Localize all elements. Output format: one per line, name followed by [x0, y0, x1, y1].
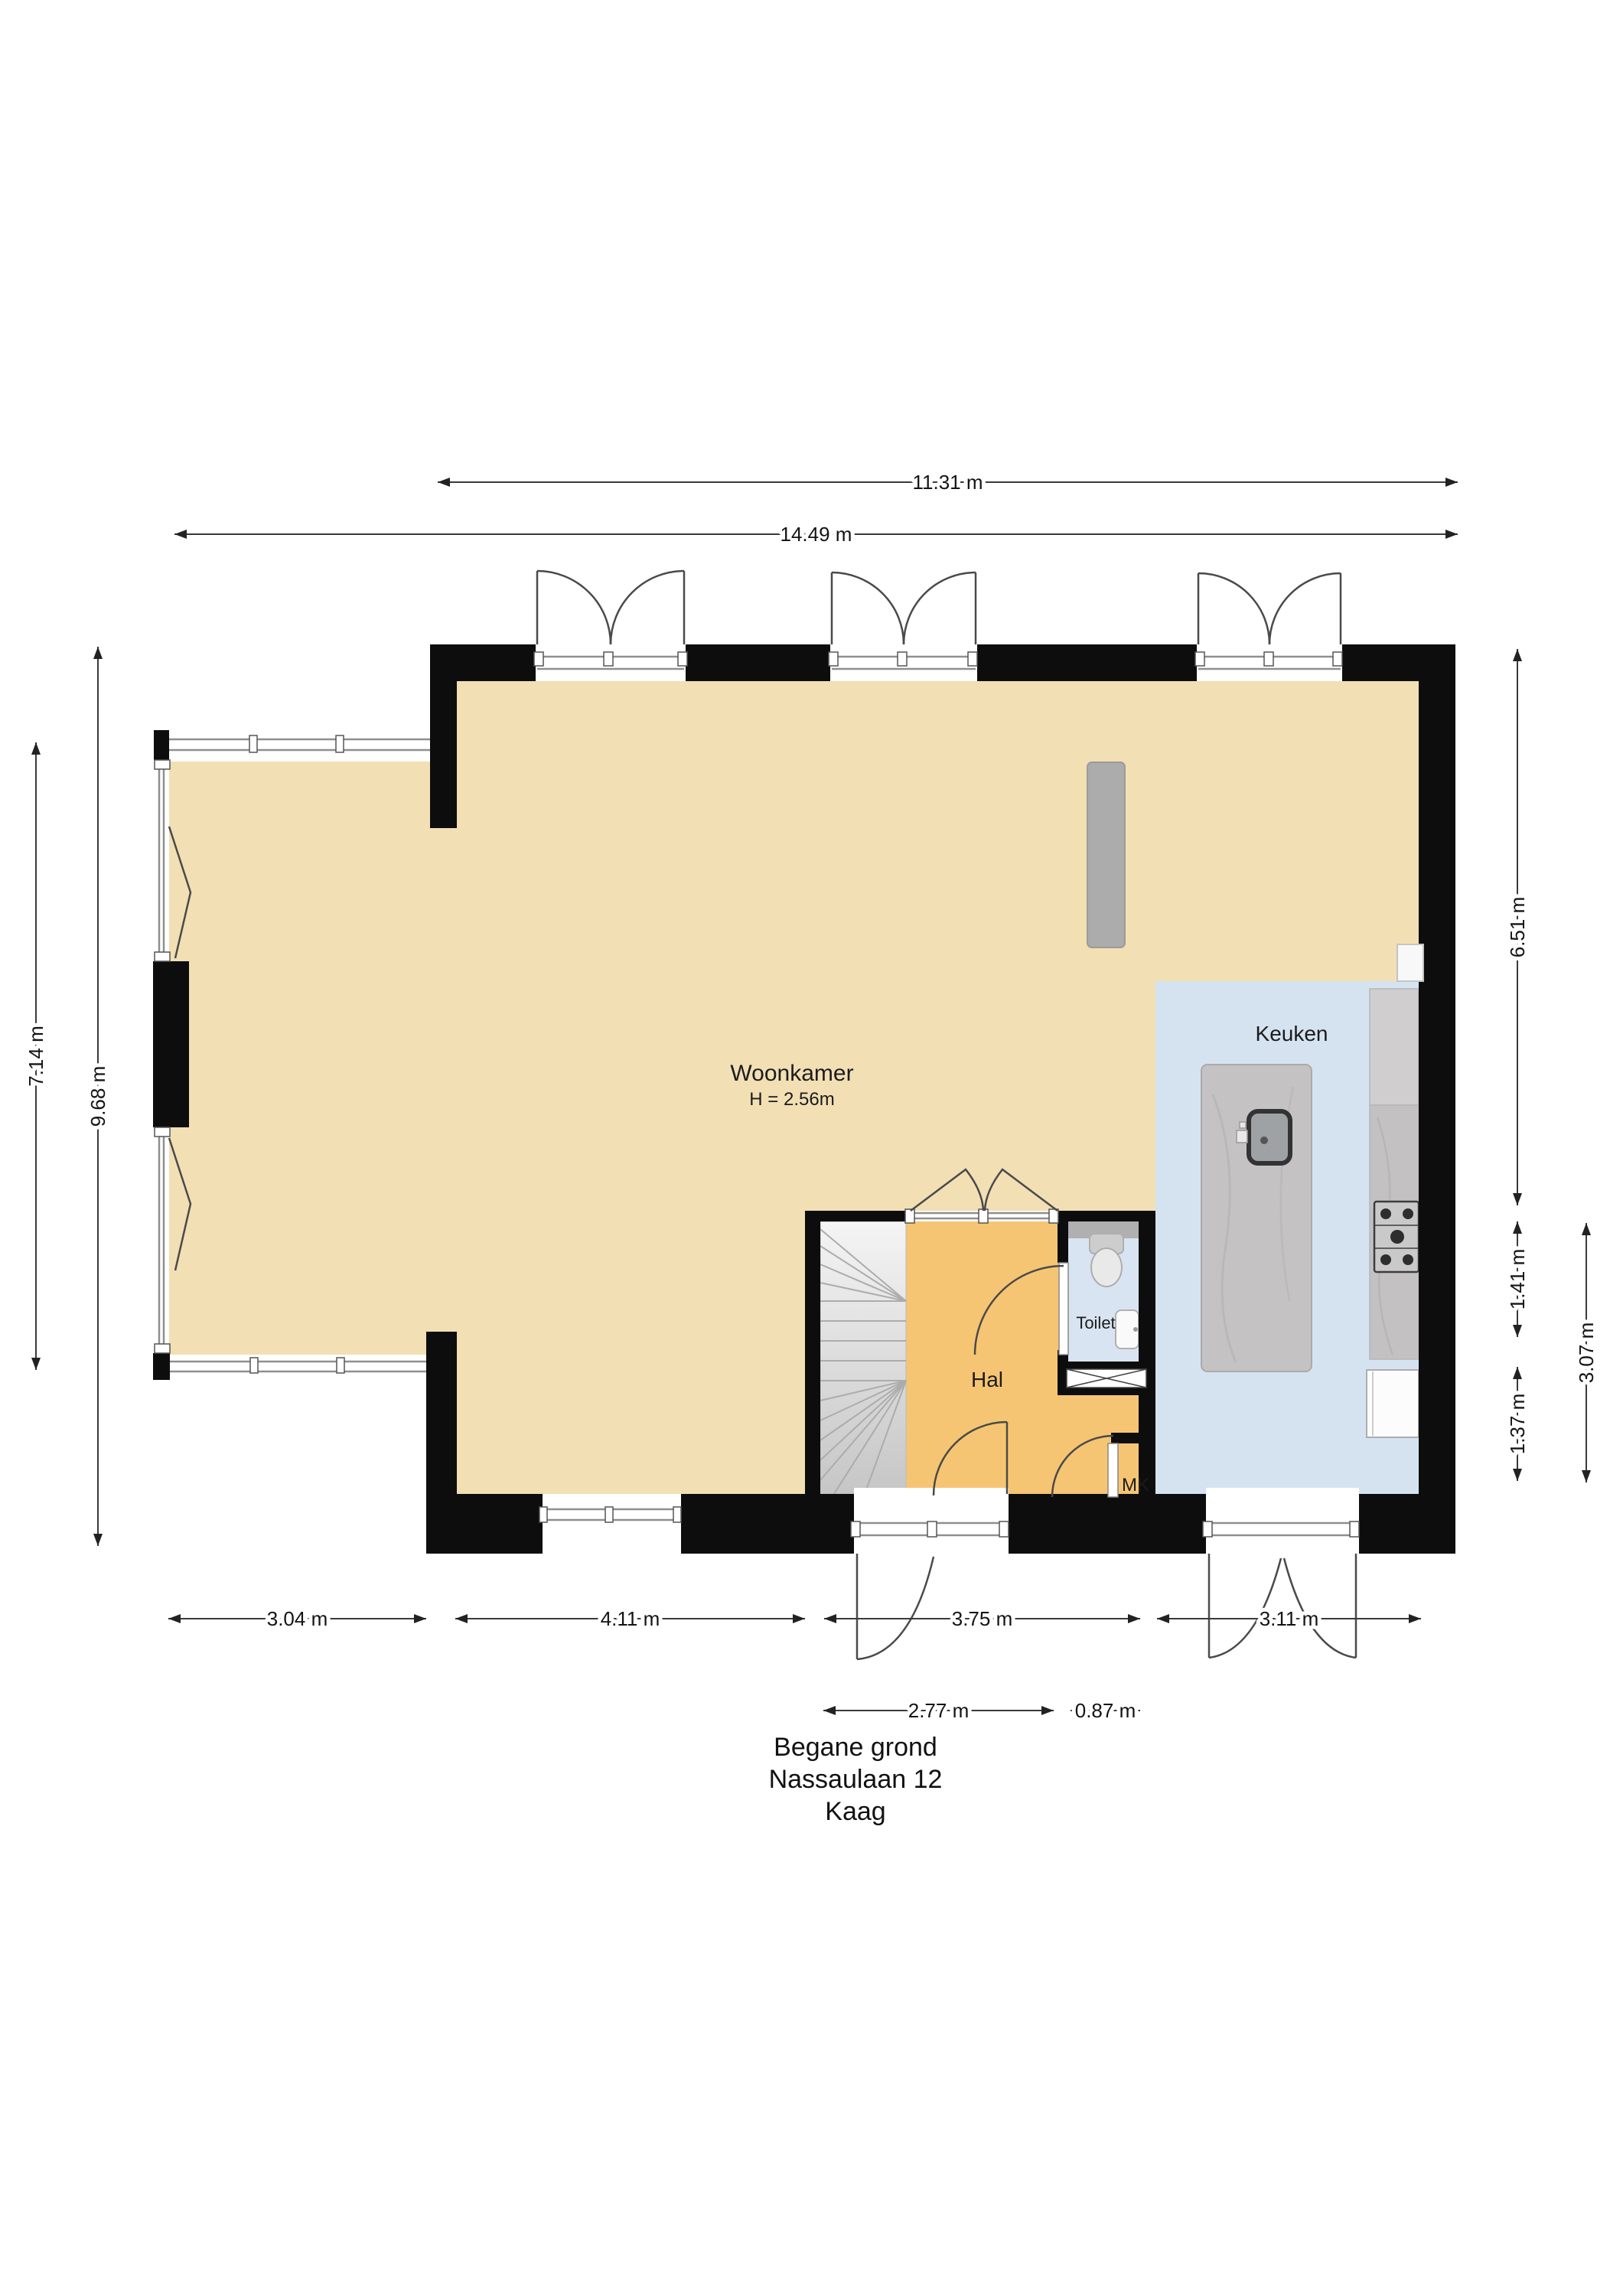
wall-segment — [1419, 644, 1455, 1554]
mk-label: MK — [1122, 1475, 1149, 1495]
sink-drain-icon — [1260, 1137, 1268, 1144]
title-street: Nassaulaan 12 — [769, 1763, 943, 1795]
wall-segment — [1009, 1494, 1206, 1554]
dimension-arrow-icon — [1041, 1706, 1054, 1715]
wall-segment — [977, 644, 1197, 681]
dimension-arrow-icon — [1513, 649, 1522, 661]
hall-top-wall — [805, 1211, 909, 1221]
dimension-label: 11.31 m — [912, 471, 983, 494]
dimension-bottom_4: 3.11 m — [1157, 1607, 1421, 1630]
dimension-label: 6.51 m — [1506, 897, 1529, 958]
woonkamer-label: Woonkamer — [730, 1061, 853, 1086]
bay-corner — [153, 1353, 170, 1380]
wall-segment — [686, 644, 830, 681]
dimension-arrow-icon — [1409, 1614, 1421, 1623]
dimension-arrow-icon — [1513, 1367, 1522, 1379]
bay-wall-block — [153, 961, 189, 1127]
dimension-left_inner: 7.14 m — [24, 742, 47, 1370]
dimension-arrow-icon — [93, 1534, 103, 1546]
dishwasher — [1367, 1370, 1419, 1437]
column — [1087, 762, 1125, 947]
title-city: Kaag — [769, 1795, 943, 1828]
dimension-label: 1.37 m — [1506, 1394, 1529, 1455]
dimension-label: 3.07 m — [1575, 1322, 1598, 1384]
dimension-bottom_1: 3.04 m — [168, 1607, 426, 1630]
french-door — [1195, 573, 1342, 681]
burner-icon — [1403, 1208, 1413, 1219]
wall-segment — [681, 1494, 854, 1554]
dimension-bottom_3: 3.75 m — [824, 1607, 1140, 1630]
dimension-arrow-icon — [414, 1614, 426, 1623]
kitchen-door — [1203, 1488, 1359, 1658]
dimension-arrow-icon — [1513, 1221, 1522, 1234]
sink-faucet-lever-icon — [1240, 1122, 1246, 1128]
dimension-sub_1: 2.77 m — [823, 1699, 1054, 1722]
dimension-arrow-icon — [1582, 1470, 1591, 1482]
washbasin-tap-icon — [1133, 1327, 1138, 1332]
burner-icon — [1403, 1254, 1413, 1265]
dimension-left_outer: 9.68 m — [86, 647, 109, 1546]
toilet-room — [1068, 1221, 1139, 1362]
dimension-label: 3.11 m — [1260, 1607, 1319, 1630]
title-block: Begane grond Nassaulaan 12 Kaag — [769, 1731, 943, 1828]
staircase-body — [820, 1221, 906, 1494]
wall-segment — [430, 644, 457, 828]
dimension-arrow-icon — [438, 478, 450, 487]
burner-icon — [1380, 1254, 1391, 1265]
dimension-arrow-icon — [1513, 1193, 1522, 1205]
toilet-bowl — [1091, 1248, 1122, 1287]
kitchen-wall — [1139, 1211, 1155, 1494]
dimension-label: 2.77 m — [908, 1699, 970, 1722]
dimension-right_upper: 6.51 m — [1506, 649, 1529, 1205]
dimension-arrow-icon — [1513, 1325, 1522, 1337]
hal-label: Hal — [971, 1368, 1003, 1391]
dimension-bottom_2: 4.11 m — [455, 1607, 805, 1630]
keuken-label: Keuken — [1256, 1022, 1328, 1045]
floorplan-page: Woonkamer H = 2.56m Keuken Hal Toilet MK… — [0, 0, 1623, 2296]
dimension-label: 9.68 m — [86, 1066, 109, 1127]
dimension-arrow-icon — [31, 742, 41, 755]
dimension-label: 14.49 m — [781, 523, 852, 546]
dimension-label: 1.41 m — [1506, 1249, 1529, 1310]
burner-icon — [1390, 1230, 1404, 1244]
dimension-label: 4.11 m — [601, 1607, 660, 1630]
burner-icon — [1380, 1208, 1391, 1219]
dimension-label: 3.04 m — [267, 1607, 328, 1630]
bay-floor — [168, 762, 457, 1358]
dimension-arrow-icon — [93, 647, 103, 659]
duct-shaft — [1067, 1369, 1146, 1388]
dimension-label: 7.14 m — [24, 1026, 47, 1087]
island-sink — [1249, 1111, 1290, 1163]
dimension-right_lower: 1.37 m — [1506, 1367, 1529, 1481]
dimension-arrow-icon — [1445, 478, 1458, 487]
hall-wall — [805, 1211, 820, 1494]
wall-segment — [1359, 1494, 1455, 1554]
dimension-arrow-icon — [174, 530, 187, 539]
sink-faucet-icon — [1237, 1130, 1247, 1143]
toilet-label: Toilet — [1076, 1313, 1115, 1332]
living-room-floor — [457, 681, 1419, 981]
bay-corner — [154, 730, 169, 760]
dimension-arrow-icon — [824, 1614, 836, 1623]
dimension-arrow-icon — [1513, 1469, 1522, 1481]
dimension-arrow-icon — [1128, 1614, 1140, 1623]
dimension-arrow-icon — [793, 1614, 805, 1623]
stove — [1374, 1202, 1419, 1272]
dimension-label: 3.75 m — [952, 1607, 1013, 1630]
dimension-sub_2: 0.87 m — [1071, 1699, 1140, 1722]
mk-wall — [1111, 1433, 1139, 1443]
dimension-arrow-icon — [168, 1614, 181, 1623]
wall-niche — [1397, 944, 1423, 981]
dimension-label: 0.87 m — [1075, 1699, 1136, 1722]
dimension-right_outer: 3.07 m — [1575, 1223, 1598, 1482]
dimension-right_mid: 1.41 m — [1506, 1221, 1529, 1337]
floorplan-drawing: Woonkamer H = 2.56m Keuken Hal Toilet MK… — [0, 0, 1623, 2296]
dimension-arrow-icon — [1157, 1614, 1169, 1623]
dimension-top_inner: 11.31 m — [438, 471, 1458, 494]
kitchen-counter-upper — [1370, 989, 1419, 1105]
title-floor: Begane grond — [769, 1731, 943, 1763]
french-door — [534, 571, 687, 681]
dimension-arrow-icon — [31, 1358, 41, 1370]
dimension-top_outer: 14.49 m — [174, 523, 1458, 546]
dimension-arrow-icon — [1445, 530, 1458, 539]
toilet-wall — [1058, 1211, 1068, 1263]
dimension-arrow-icon — [455, 1614, 468, 1623]
french-door — [829, 572, 977, 681]
woonkamer-height-label: H = 2.56m — [749, 1089, 834, 1110]
wall-segment — [426, 1332, 457, 1554]
staircase — [820, 1221, 906, 1494]
dimension-arrow-icon — [1582, 1223, 1591, 1235]
dimension-arrow-icon — [823, 1706, 836, 1715]
